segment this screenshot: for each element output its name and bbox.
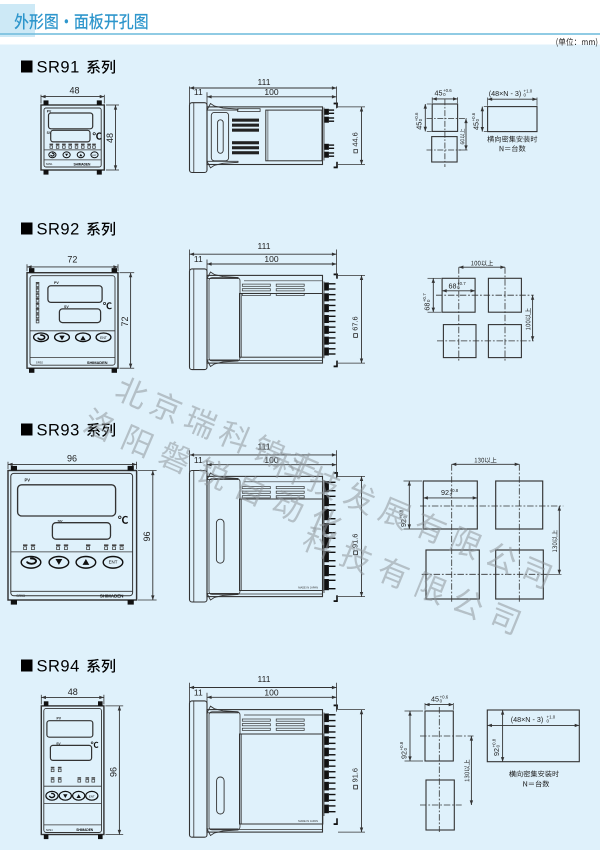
svg-text:11: 11 xyxy=(194,87,203,97)
svg-text:48: 48 xyxy=(68,687,78,697)
svg-text:11: 11 xyxy=(194,254,203,264)
svg-text:SR92: SR92 xyxy=(36,360,44,364)
svg-text:SHIMADEN: SHIMADEN xyxy=(74,162,92,166)
svg-text:48: 48 xyxy=(105,133,115,143)
svg-text:SHIMADEN: SHIMADEN xyxy=(100,594,124,599)
svg-text:100: 100 xyxy=(264,254,278,264)
svg-text:11: 11 xyxy=(194,455,203,465)
svg-text:ENT: ENT xyxy=(92,155,97,157)
svg-text:45: 45 xyxy=(431,695,439,704)
svg-text:45: 45 xyxy=(471,122,480,130)
svg-text:(48×N - 3): (48×N - 3) xyxy=(489,89,522,98)
svg-text:92: 92 xyxy=(399,751,408,759)
svg-text:96: 96 xyxy=(142,531,152,541)
svg-text:96: 96 xyxy=(67,454,77,464)
svg-text:11: 11 xyxy=(194,688,203,698)
svg-text:91.6: 91.6 xyxy=(350,768,359,782)
svg-text:100: 100 xyxy=(264,688,278,698)
svg-text:PV: PV xyxy=(25,478,31,483)
svg-text:ENT: ENT xyxy=(100,336,107,340)
svg-text:48: 48 xyxy=(69,85,79,95)
svg-text:92: 92 xyxy=(492,748,501,756)
svg-text:SR91: SR91 xyxy=(37,59,80,77)
svg-text:72: 72 xyxy=(67,255,77,265)
svg-text:72: 72 xyxy=(120,316,130,326)
svg-text:SR94: SR94 xyxy=(37,658,80,676)
svg-text:(48×N - 3): (48×N - 3) xyxy=(511,715,544,724)
svg-text:SR94: SR94 xyxy=(46,828,53,832)
svg-text:SHIMADEN: SHIMADEN xyxy=(87,360,108,365)
svg-text:45: 45 xyxy=(435,89,443,98)
svg-text:ENT: ENT xyxy=(89,794,95,798)
svg-text:67.6: 67.6 xyxy=(350,316,359,330)
svg-text:SHIMADEN: SHIMADEN xyxy=(76,828,94,832)
svg-text:92: 92 xyxy=(441,488,449,497)
svg-text:68: 68 xyxy=(449,281,457,290)
svg-text:100: 100 xyxy=(264,87,278,97)
svg-text:111: 111 xyxy=(258,77,271,87)
svg-text:45: 45 xyxy=(414,122,423,130)
svg-text:SR93: SR93 xyxy=(37,422,80,440)
svg-text:44.6: 44.6 xyxy=(350,132,359,146)
svg-text:111: 111 xyxy=(258,674,271,684)
svg-text:68: 68 xyxy=(423,303,432,311)
svg-text:96: 96 xyxy=(109,767,119,777)
svg-text:SR93: SR93 xyxy=(16,594,25,598)
svg-text:PV: PV xyxy=(54,281,59,285)
svg-text:SR92: SR92 xyxy=(37,221,80,239)
svg-text:SR91: SR91 xyxy=(46,162,53,166)
svg-text:MADE IN JAPAN: MADE IN JAPAN xyxy=(298,585,318,589)
svg-text:MADE IN JAPAN: MADE IN JAPAN xyxy=(298,819,318,823)
svg-text:PV: PV xyxy=(57,716,62,720)
svg-text:111: 111 xyxy=(258,241,271,251)
svg-text:ENT: ENT xyxy=(109,559,118,564)
